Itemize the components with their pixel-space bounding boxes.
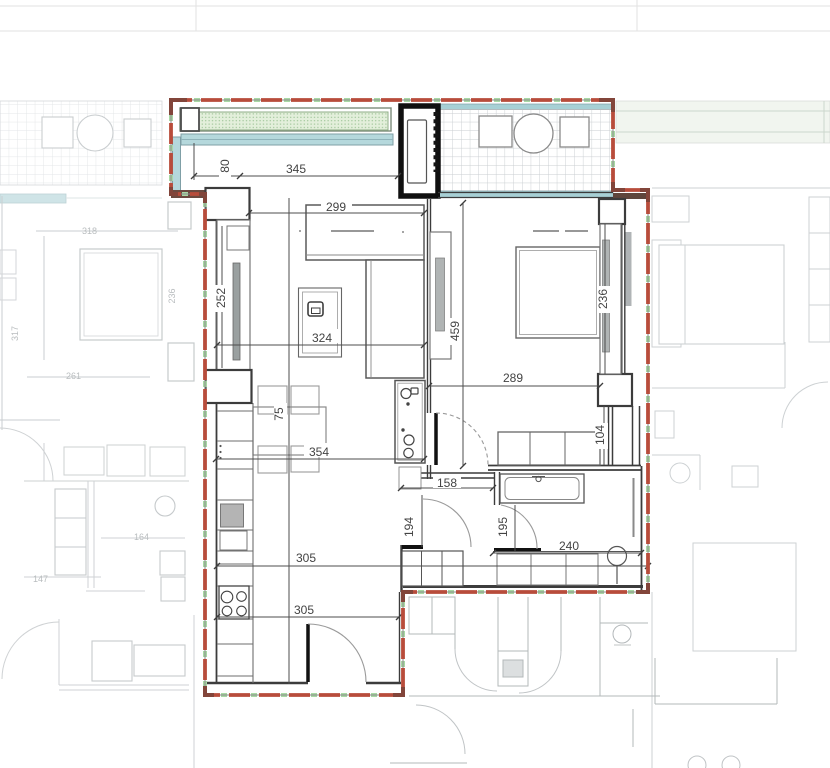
svg-text:305: 305 xyxy=(296,551,316,565)
svg-text:289: 289 xyxy=(503,371,523,385)
svg-text:104: 104 xyxy=(593,425,607,445)
svg-text:236: 236 xyxy=(596,289,610,309)
svg-text:80: 80 xyxy=(218,159,232,173)
svg-text:317: 317 xyxy=(10,326,20,341)
svg-text:345: 345 xyxy=(286,162,306,176)
svg-text:318: 318 xyxy=(82,226,97,236)
svg-text:147: 147 xyxy=(33,574,48,584)
svg-text:459: 459 xyxy=(448,321,462,341)
svg-text:252: 252 xyxy=(214,288,228,308)
svg-text:194: 194 xyxy=(402,517,416,537)
svg-text:195: 195 xyxy=(496,517,510,537)
svg-text:261: 261 xyxy=(66,371,81,381)
svg-text:305: 305 xyxy=(294,603,314,617)
svg-text:75: 75 xyxy=(272,407,286,421)
svg-text:236: 236 xyxy=(167,288,177,303)
svg-text:240: 240 xyxy=(559,539,579,553)
svg-text:299: 299 xyxy=(326,200,346,214)
svg-text:164: 164 xyxy=(134,532,149,542)
svg-text:324: 324 xyxy=(312,331,332,345)
svg-text:354: 354 xyxy=(309,445,329,459)
svg-text:158: 158 xyxy=(437,476,457,490)
